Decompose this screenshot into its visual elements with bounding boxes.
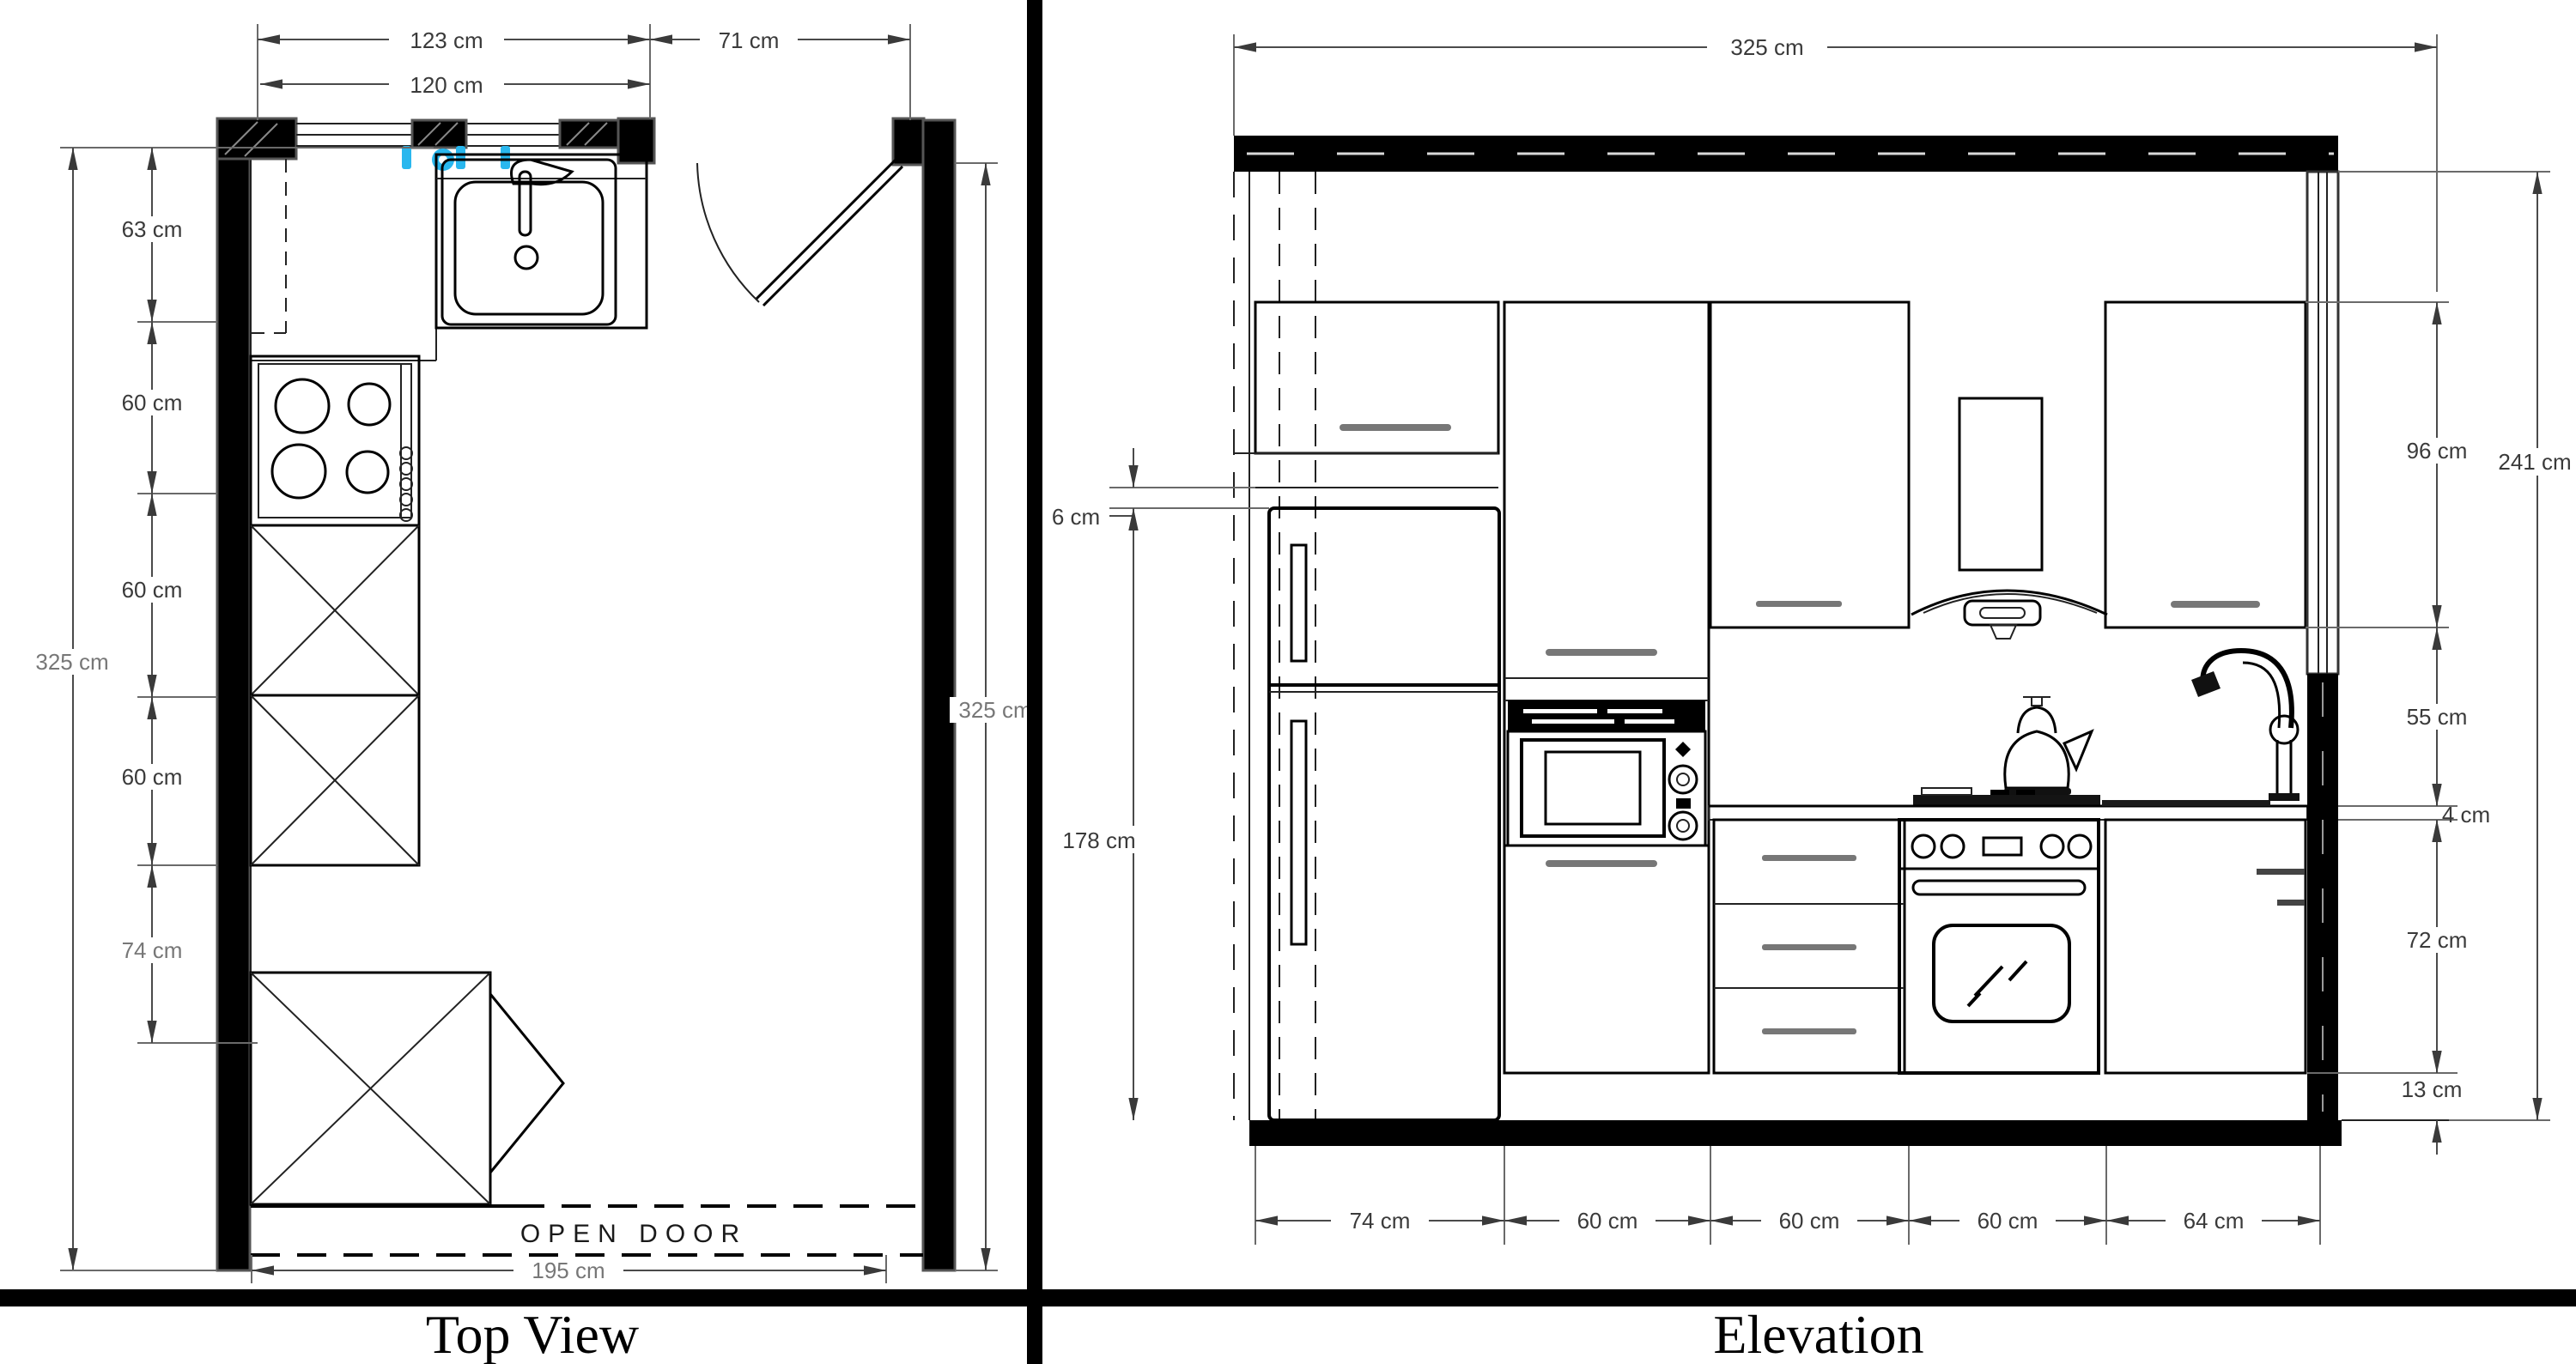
door-swing [697,160,902,306]
cooktop-knobs [400,447,412,521]
window-strip [2307,172,2338,1120]
sink-base-cabinet [2105,820,2306,1073]
dim-55: 55 cm [2407,704,2468,730]
sink-rim [2102,800,2270,806]
faucet-elevation-icon [2191,651,2300,801]
microwave-window [1522,740,1664,836]
outlet-icon [402,146,411,169]
hob-strip [1913,788,2100,806]
cabinet-handle [1546,860,1657,867]
dim-60-elev-a: 60 cm [1577,1208,1638,1234]
panel-divider-vertical [1027,0,1042,1364]
burner-icon [272,445,325,498]
dim-71: 71 cm [719,27,780,53]
outlet-icon [501,146,510,169]
dim-60-b: 60 cm [122,577,183,603]
outlet-icon [456,146,465,169]
dim-6: 6 cm [1052,504,1100,530]
cabinet-handle [1340,424,1451,431]
dim-72: 72 cm [2407,927,2468,953]
base-cabinet-x1 [251,525,419,695]
drawer-handle [1762,944,1856,950]
oven-handle [1913,881,2085,894]
corner-base-cabinet [251,973,563,1204]
kettle-icon [2004,697,2092,795]
dim-64: 64 cm [2184,1208,2245,1234]
open-door-band: OPEN DOOR [251,1206,923,1255]
microwave-knob-icon [1669,766,1697,793]
corner-cabinet [251,155,436,361]
microwave-indicator-icon [1675,742,1691,757]
drawer-handle [1762,855,1856,861]
wall-right [893,118,955,1270]
corner-post [217,118,296,159]
sink-counter [436,155,647,328]
drawer-handle [1762,1028,1856,1034]
cabinet-handle [2277,900,2305,906]
base-cabinet-x2 [251,695,419,865]
cabinet-handle [2257,869,2305,875]
dim-13: 13 cm [2402,1076,2463,1102]
oven-knob-icon [1941,835,1964,858]
wall-dashed-lines [1234,172,1315,1120]
sink [442,160,616,324]
floor-slab [1249,1120,2449,1146]
faucet-spout-tip [2191,671,2221,697]
dim-60-elev-c: 60 cm [1978,1208,2038,1234]
dim-241: 241 cm [2498,449,2571,475]
dim-60-a: 60 cm [122,390,183,415]
drawing-sheet: OPEN DOOR 123 cm 71 cm 120 cm [0,0,2576,1364]
panel-divider-horizontal [0,1289,2576,1306]
hood-control-panel [1965,601,2040,625]
burner-icon [347,452,388,493]
fridge-handle [1291,545,1306,661]
corner-cabinet-door [490,994,563,1173]
hood-chimney [1959,398,2042,570]
dim-60-elev-b: 60 cm [1779,1208,1840,1234]
window-post [618,118,654,163]
dim-63: 63 cm [122,216,183,242]
oven-knob-icon [1912,835,1935,858]
top-view-dimensions-bottom: 195 cm [252,1255,886,1283]
elevation-title: Elevation [1713,1304,1923,1364]
top-view-panel: OPEN DOOR 123 cm 71 cm 120 cm [24,24,1041,1283]
dim-325-elevation: 325 cm [1730,34,1803,60]
elevation-panel: 325 cm [1041,34,2576,1245]
fridge-handle [1291,721,1306,944]
drain-icon [515,246,538,269]
door-leaf [763,167,902,306]
wall-cabinet-right [2105,302,2306,627]
drawer-unit [1714,820,1905,1073]
ceiling-beam [1234,136,2338,172]
open-door-label: OPEN DOOR [520,1220,747,1248]
dim-4: 4 cm [2442,802,2490,827]
elevation-dim-bottom: 74 cm 60 cm 60 cm 60 cm 64 cm [1255,1146,2320,1245]
cabinet-over-fridge [1234,302,1498,488]
dim-74-elev: 74 cm [1350,1208,1411,1234]
cabinet-handle [2171,601,2260,608]
oven-knob-icon [2069,835,2091,858]
dim-74: 74 cm [122,937,183,963]
burner-icon [276,379,329,433]
microwave [1504,700,1709,846]
oven [1899,820,2099,1073]
cooktop [251,356,419,525]
dim-325-left: 325 cm [35,649,108,675]
wall-left [217,120,251,1270]
cabinet-handle [1546,649,1657,656]
top-view-dimensions-top: 123 cm 71 cm 120 cm [258,24,910,120]
top-view-title: Top View [426,1304,639,1364]
cabinet-handle [1756,601,1842,607]
dim-120: 120 cm [410,72,483,98]
elevation-dim-left: 6 cm 178 cm [1041,448,1269,1120]
wall-cabinet-left [1710,302,1909,627]
elevation-dim-right: 96 cm 55 cm 4 cm 72 cm 13 cm 241 cm [2306,172,2576,1155]
oven-window [1934,925,2069,1021]
dim-123: 123 cm [410,27,483,53]
door-leaf [756,160,896,299]
range-hood [1911,398,2107,639]
dim-96: 96 cm [2407,438,2468,464]
oven-knob-icon [2041,835,2063,858]
dim-195: 195 cm [532,1258,605,1283]
microwave-knob-icon [1669,812,1697,840]
dim-178: 178 cm [1062,827,1135,853]
fridge [1269,508,1499,1120]
dim-325-right: 325 cm [958,697,1031,723]
dim-60-c: 60 cm [122,764,183,790]
door-swing-arc [697,163,759,302]
door-hinge-post [893,118,924,165]
tall-cabinet [1504,302,1709,1073]
oven-display [1984,838,2021,855]
burner-icon [349,384,390,425]
